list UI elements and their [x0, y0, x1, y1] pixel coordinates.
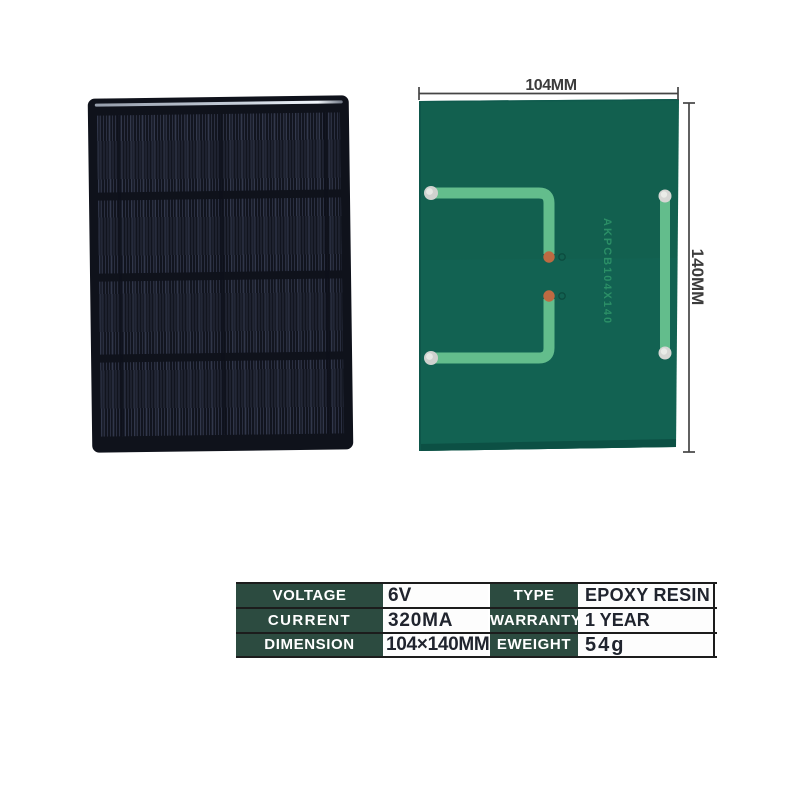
svg-text:140MM: 140MM: [688, 249, 707, 306]
svg-text:AKPCB104X140: AKPCB104X140: [601, 218, 613, 325]
svg-text:104MM: 104MM: [525, 77, 576, 94]
